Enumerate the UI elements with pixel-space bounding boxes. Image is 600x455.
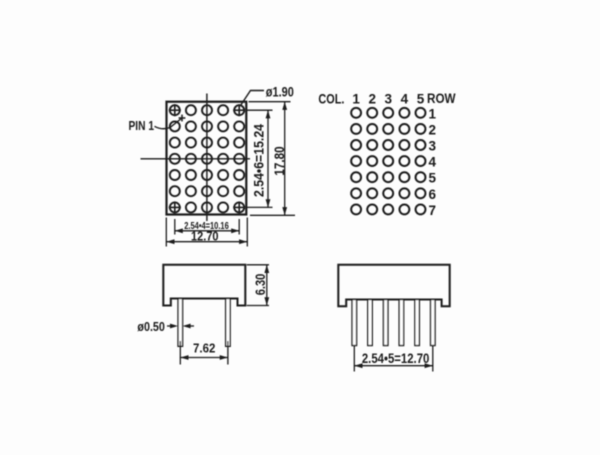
svg-text:4: 4 — [429, 155, 437, 170]
svg-text:17.80: 17.80 — [272, 146, 287, 175]
svg-text:2: 2 — [429, 122, 437, 137]
svg-text:6.30: 6.30 — [253, 274, 268, 296]
svg-text:PIN 1: PIN 1 — [129, 119, 155, 133]
svg-text:7.62: 7.62 — [193, 340, 215, 355]
svg-text:ø0.50: ø0.50 — [137, 319, 165, 334]
svg-text:1: 1 — [429, 106, 437, 121]
svg-text:2.54•6=15.24: 2.54•6=15.24 — [252, 124, 267, 197]
svg-text:3: 3 — [429, 139, 437, 154]
svg-text:7: 7 — [429, 203, 437, 218]
svg-text:2: 2 — [368, 92, 376, 107]
svg-text:ROW: ROW — [427, 91, 456, 106]
svg-text:12.70: 12.70 — [191, 228, 219, 243]
svg-text:6: 6 — [429, 187, 437, 202]
svg-text:COL.: COL. — [318, 92, 344, 107]
svg-text:4: 4 — [401, 92, 409, 107]
svg-text:2.54•5=12.70: 2.54•5=12.70 — [362, 351, 430, 366]
svg-text:ø1.90: ø1.90 — [266, 84, 294, 99]
svg-text:5: 5 — [417, 92, 425, 107]
svg-text:5: 5 — [429, 171, 437, 186]
svg-text:3: 3 — [384, 92, 392, 107]
svg-text:1: 1 — [352, 92, 360, 107]
